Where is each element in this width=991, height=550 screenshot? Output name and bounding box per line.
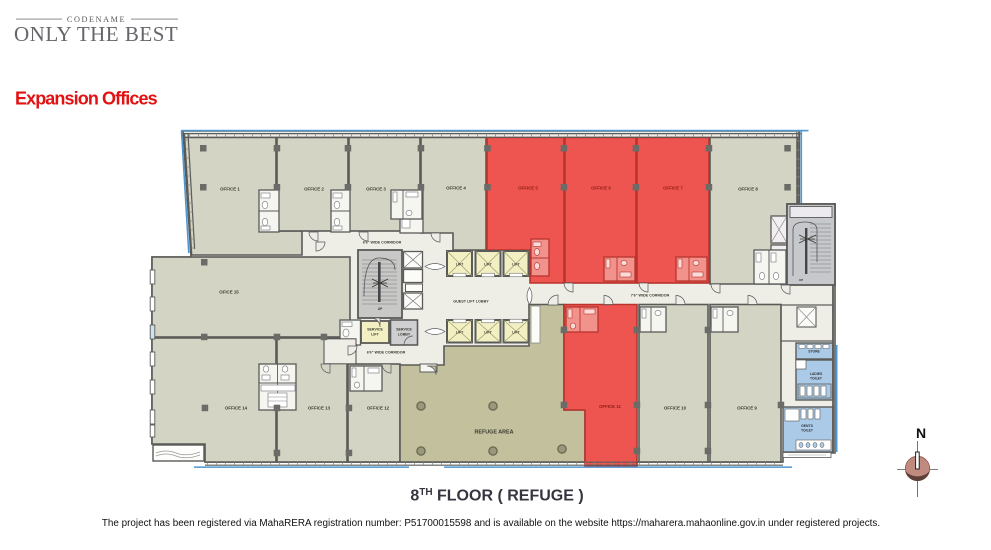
- svg-text:LIFT: LIFT: [484, 331, 492, 335]
- svg-text:GENTS: GENTS: [801, 424, 813, 428]
- svg-text:SERVICE: SERVICE: [367, 328, 383, 332]
- svg-text:STORE: STORE: [808, 350, 820, 354]
- svg-text:LIFT: LIFT: [456, 331, 464, 335]
- svg-text:7'6" WIDE CORRIDOR: 7'6" WIDE CORRIDOR: [631, 294, 670, 298]
- svg-text:OFFICE 8: OFFICE 8: [738, 187, 758, 192]
- svg-text:REFUGE AREA: REFUGE AREA: [474, 430, 513, 436]
- svg-text:OFFICE 13: OFFICE 13: [308, 406, 331, 411]
- svg-text:GUEST LIFT LOBBY: GUEST LIFT LOBBY: [453, 300, 489, 304]
- svg-text:OFFICE 9: OFFICE 9: [737, 406, 757, 411]
- svg-text:LADIES: LADIES: [810, 372, 823, 376]
- svg-text:8TH FLOOR ( REFUGE ): 8TH FLOOR ( REFUGE ): [410, 487, 583, 505]
- svg-text:UP: UP: [799, 278, 803, 282]
- svg-text:OFFICE 2: OFFICE 2: [304, 187, 324, 192]
- svg-text:LIFT: LIFT: [512, 331, 520, 335]
- svg-text:OFFICE 12: OFFICE 12: [367, 406, 390, 411]
- svg-text:6'6" WIDE CORRIDOR: 6'6" WIDE CORRIDOR: [363, 241, 402, 245]
- svg-text:LOBBY: LOBBY: [398, 333, 411, 337]
- svg-text:Expansion Offices: Expansion Offices: [15, 88, 158, 108]
- svg-text:OFFICE 5: OFFICE 5: [518, 186, 538, 191]
- svg-text:LIFT: LIFT: [456, 263, 464, 267]
- svg-text:OFFICE 7: OFFICE 7: [663, 186, 683, 191]
- svg-text:LIFT: LIFT: [512, 263, 520, 267]
- svg-text:The project has been registere: The project has been registered via Maha…: [102, 518, 880, 529]
- svg-text:TOILET: TOILET: [810, 377, 823, 381]
- svg-text:OFFICE 14: OFFICE 14: [225, 406, 248, 411]
- svg-text:OFICE 15: OFICE 15: [219, 290, 239, 295]
- svg-text:OFFICE 1: OFFICE 1: [220, 187, 240, 192]
- svg-text:OFFICE 10: OFFICE 10: [664, 406, 687, 411]
- svg-text:ONLY THE BEST: ONLY THE BEST: [14, 22, 178, 46]
- svg-text:6'6" WIDE CORRIDOR: 6'6" WIDE CORRIDOR: [367, 351, 406, 355]
- svg-text:OFFICE 3: OFFICE 3: [366, 187, 386, 192]
- svg-text:OFFICE 6: OFFICE 6: [591, 186, 611, 191]
- svg-text:TOILET: TOILET: [801, 429, 814, 433]
- svg-text:LIFT: LIFT: [484, 263, 492, 267]
- svg-text:SERVICE: SERVICE: [396, 328, 412, 332]
- svg-text:OFFICE 4: OFFICE 4: [446, 186, 466, 191]
- svg-text:N: N: [916, 425, 926, 441]
- svg-text:OFFICE 11: OFFICE 11: [599, 404, 622, 409]
- svg-text:LIFT: LIFT: [371, 333, 379, 337]
